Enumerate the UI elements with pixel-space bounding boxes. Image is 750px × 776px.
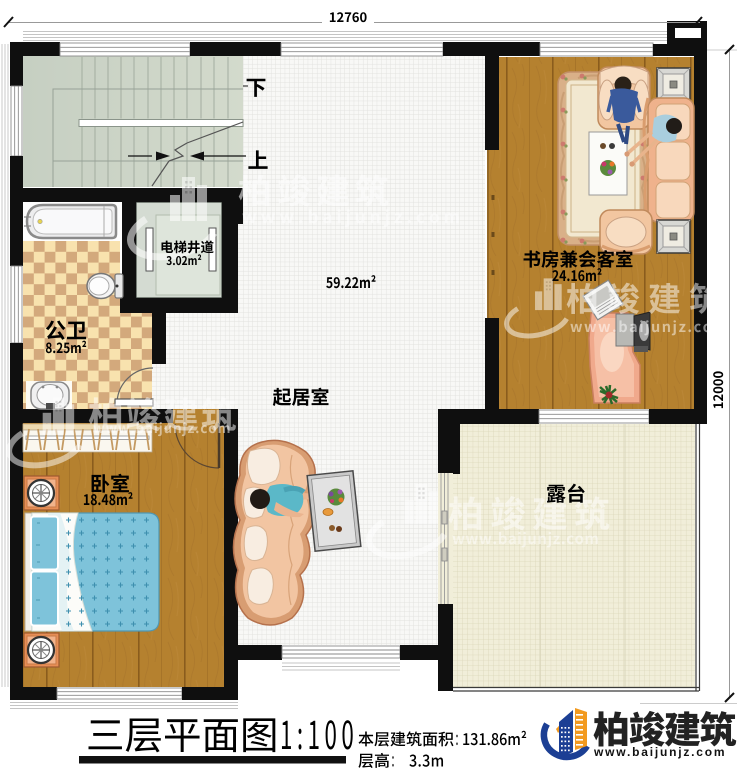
svg-text:www.baijunjz.com: www.baijunjz.com: [593, 745, 726, 759]
